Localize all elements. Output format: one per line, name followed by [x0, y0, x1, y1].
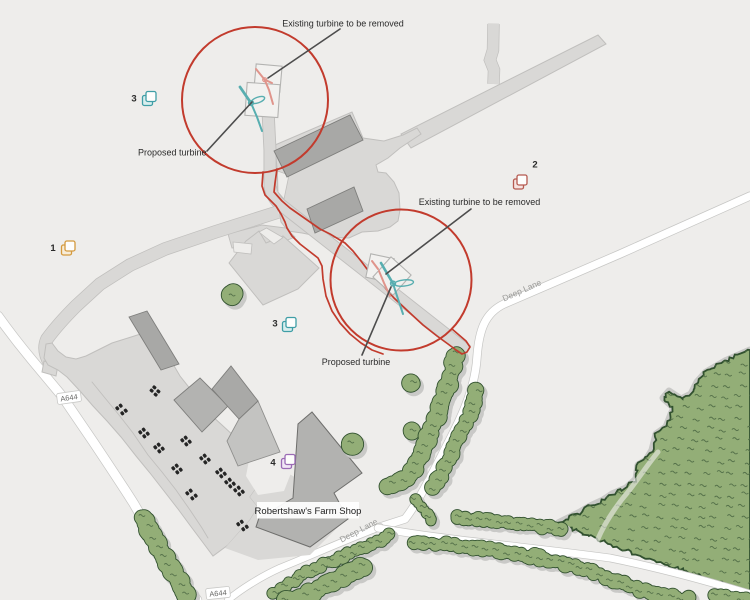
svg-text:1: 1	[50, 243, 56, 254]
svg-text:Existing turbine to be removed: Existing turbine to be removed	[282, 19, 404, 29]
svg-text:Existing turbine to be removed: Existing turbine to be removed	[419, 197, 541, 207]
svg-text:Proposed turbine: Proposed turbine	[322, 357, 391, 367]
svg-text:Proposed turbine: Proposed turbine	[138, 148, 207, 158]
svg-text:Robertshaw's Farm Shop: Robertshaw's Farm Shop	[255, 506, 362, 517]
svg-text:2: 2	[532, 160, 537, 171]
svg-text:3: 3	[272, 319, 277, 330]
svg-text:4: 4	[270, 458, 276, 469]
svg-text:A644: A644	[209, 588, 227, 599]
svg-text:3: 3	[131, 94, 136, 105]
